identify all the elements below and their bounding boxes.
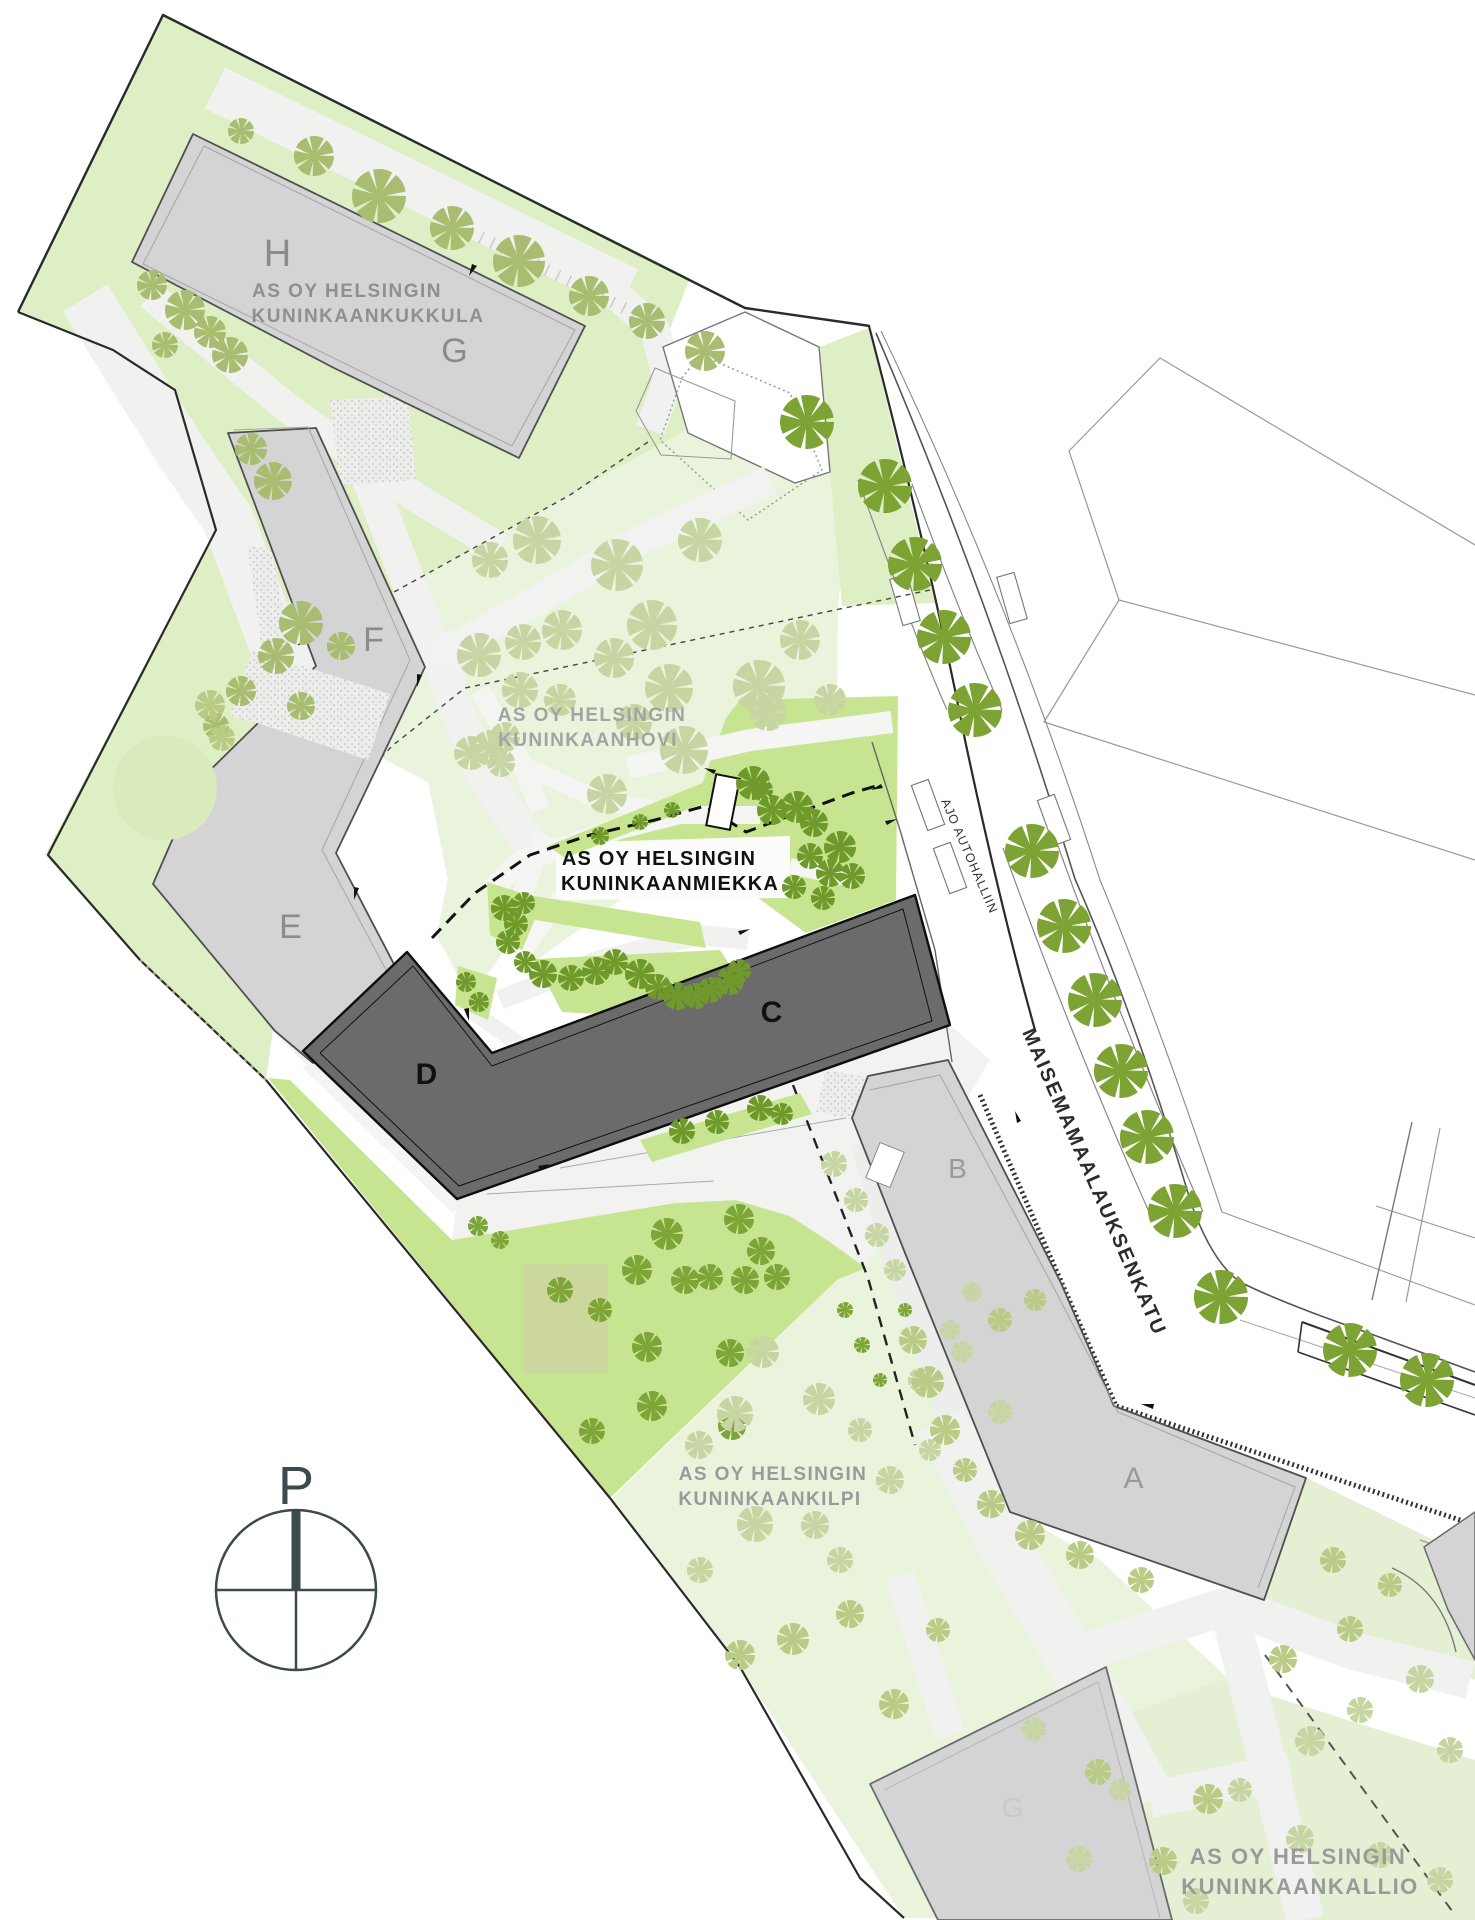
svg-text:F: F bbox=[363, 621, 385, 659]
svg-text:KUNINKAANMIEKKA: KUNINKAANMIEKKA bbox=[561, 873, 779, 895]
svg-text:KUNINKAANKUKKULA: KUNINKAANKUKKULA bbox=[252, 306, 485, 327]
svg-text:C: C bbox=[761, 996, 784, 1029]
svg-text:D: D bbox=[416, 1058, 439, 1091]
svg-text:B: B bbox=[948, 1153, 968, 1184]
svg-text:AS OY HELSINGIN: AS OY HELSINGIN bbox=[498, 705, 687, 726]
svg-text:KUNINKAANHOVI: KUNINKAANHOVI bbox=[498, 730, 678, 751]
svg-text:KUNINKAANKALLIO: KUNINKAANKALLIO bbox=[1181, 1874, 1419, 1899]
svg-text:G: G bbox=[441, 332, 468, 370]
svg-text:KUNINKAANKILPI: KUNINKAANKILPI bbox=[678, 1489, 861, 1510]
svg-text:H: H bbox=[264, 233, 292, 275]
svg-text:A: A bbox=[1123, 1462, 1144, 1495]
svg-text:AS OY HELSINGIN: AS OY HELSINGIN bbox=[562, 848, 756, 870]
svg-text:G: G bbox=[1002, 1792, 1025, 1823]
svg-text:E: E bbox=[279, 908, 303, 946]
svg-text:AS OY HELSINGIN: AS OY HELSINGIN bbox=[252, 281, 442, 302]
svg-text:AS OY HELSINGIN: AS OY HELSINGIN bbox=[1190, 1844, 1406, 1869]
svg-text:P: P bbox=[278, 1456, 314, 1516]
svg-text:AS OY HELSINGIN: AS OY HELSINGIN bbox=[679, 1464, 868, 1485]
